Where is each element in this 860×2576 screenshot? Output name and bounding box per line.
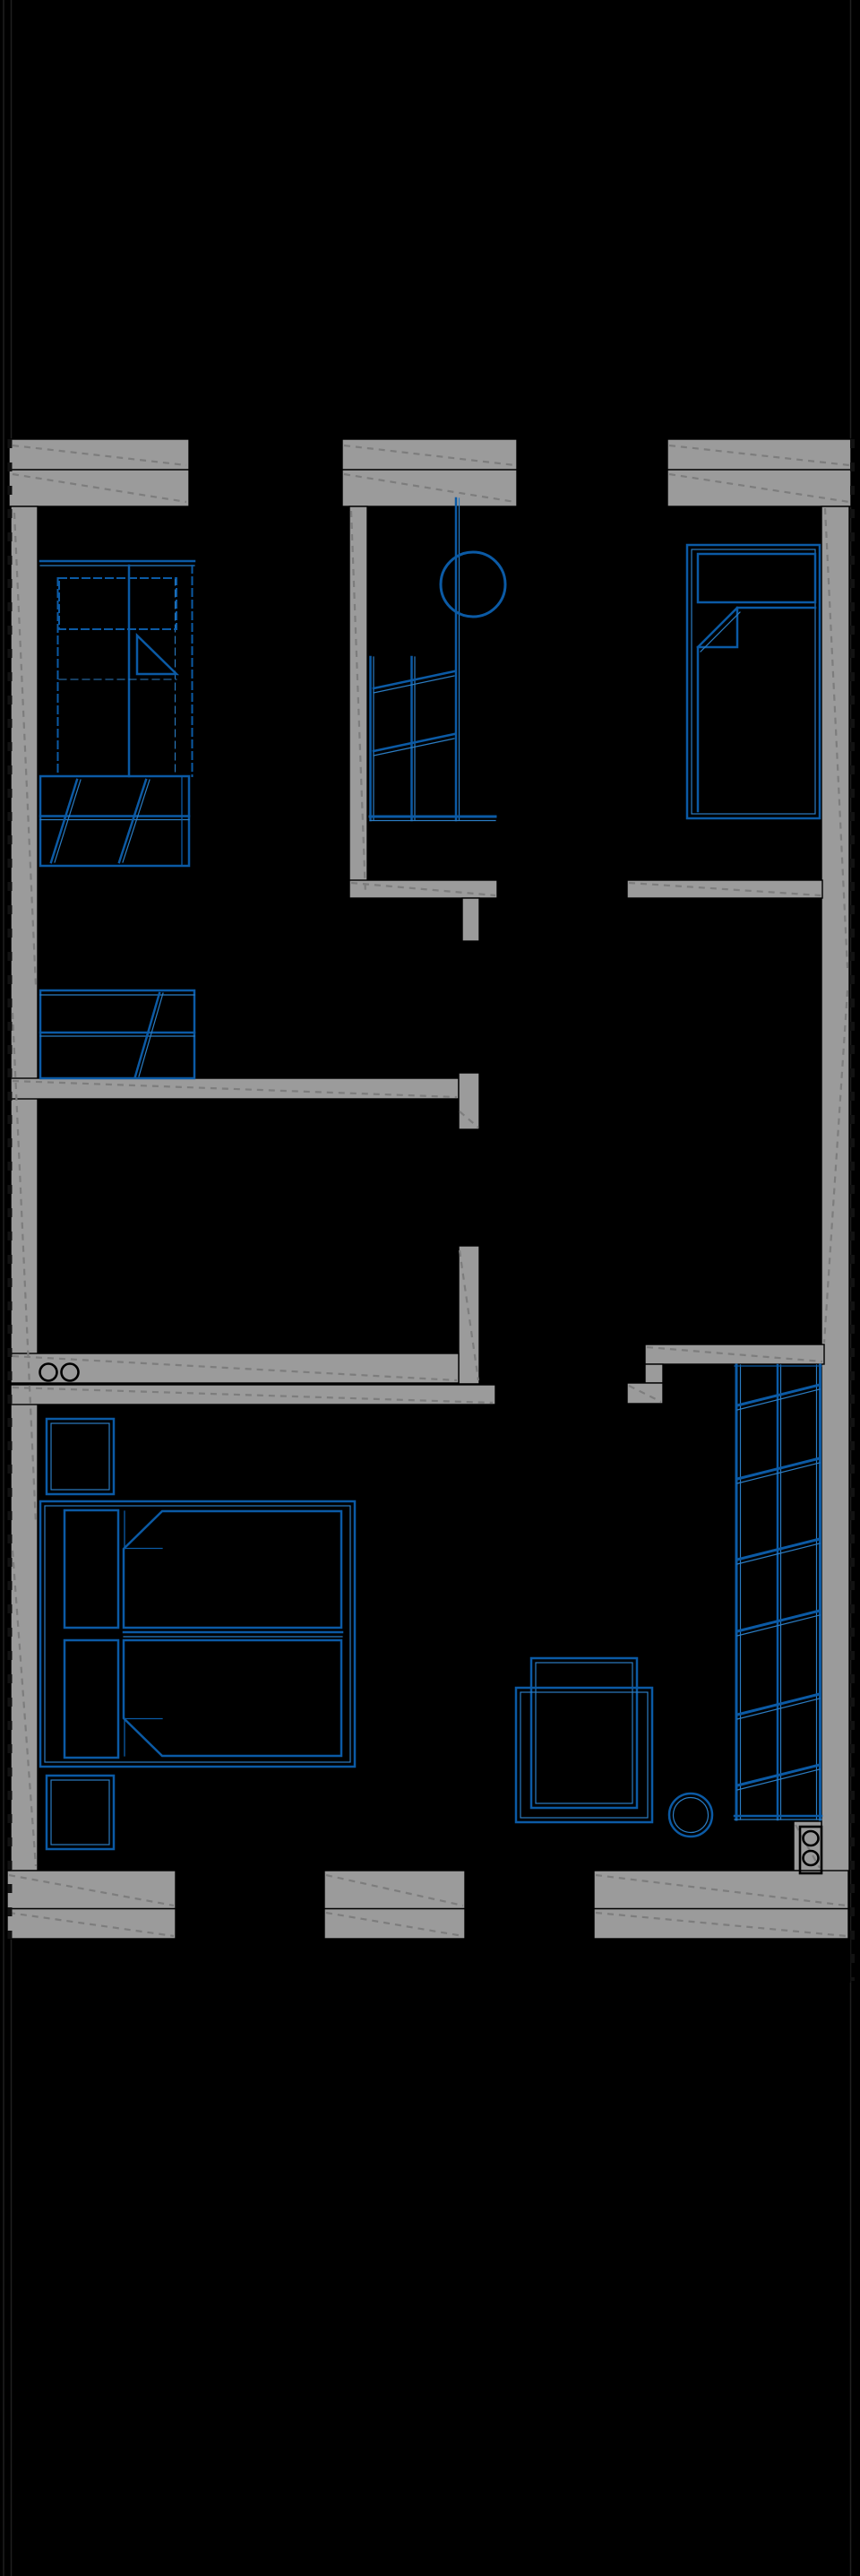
wall-bottom-left [7, 1871, 176, 1939]
wall-bottom-right [594, 1871, 848, 1939]
wall-corridor-lower-b [11, 1385, 495, 1405]
background [0, 0, 860, 2576]
floor-plan-drawing [0, 0, 860, 2576]
wall-stairwell-stub [462, 898, 479, 941]
wall-bottomright-step [645, 1364, 663, 1383]
wall-bottomright-top [645, 1344, 824, 1364]
wall-top-left [9, 439, 189, 506]
wall-corridor-upper-stub [459, 1073, 479, 1129]
floor-plan-canvas [0, 0, 860, 2576]
wall-bottom-middle [324, 1871, 465, 1939]
wall-top-middle [342, 439, 517, 506]
